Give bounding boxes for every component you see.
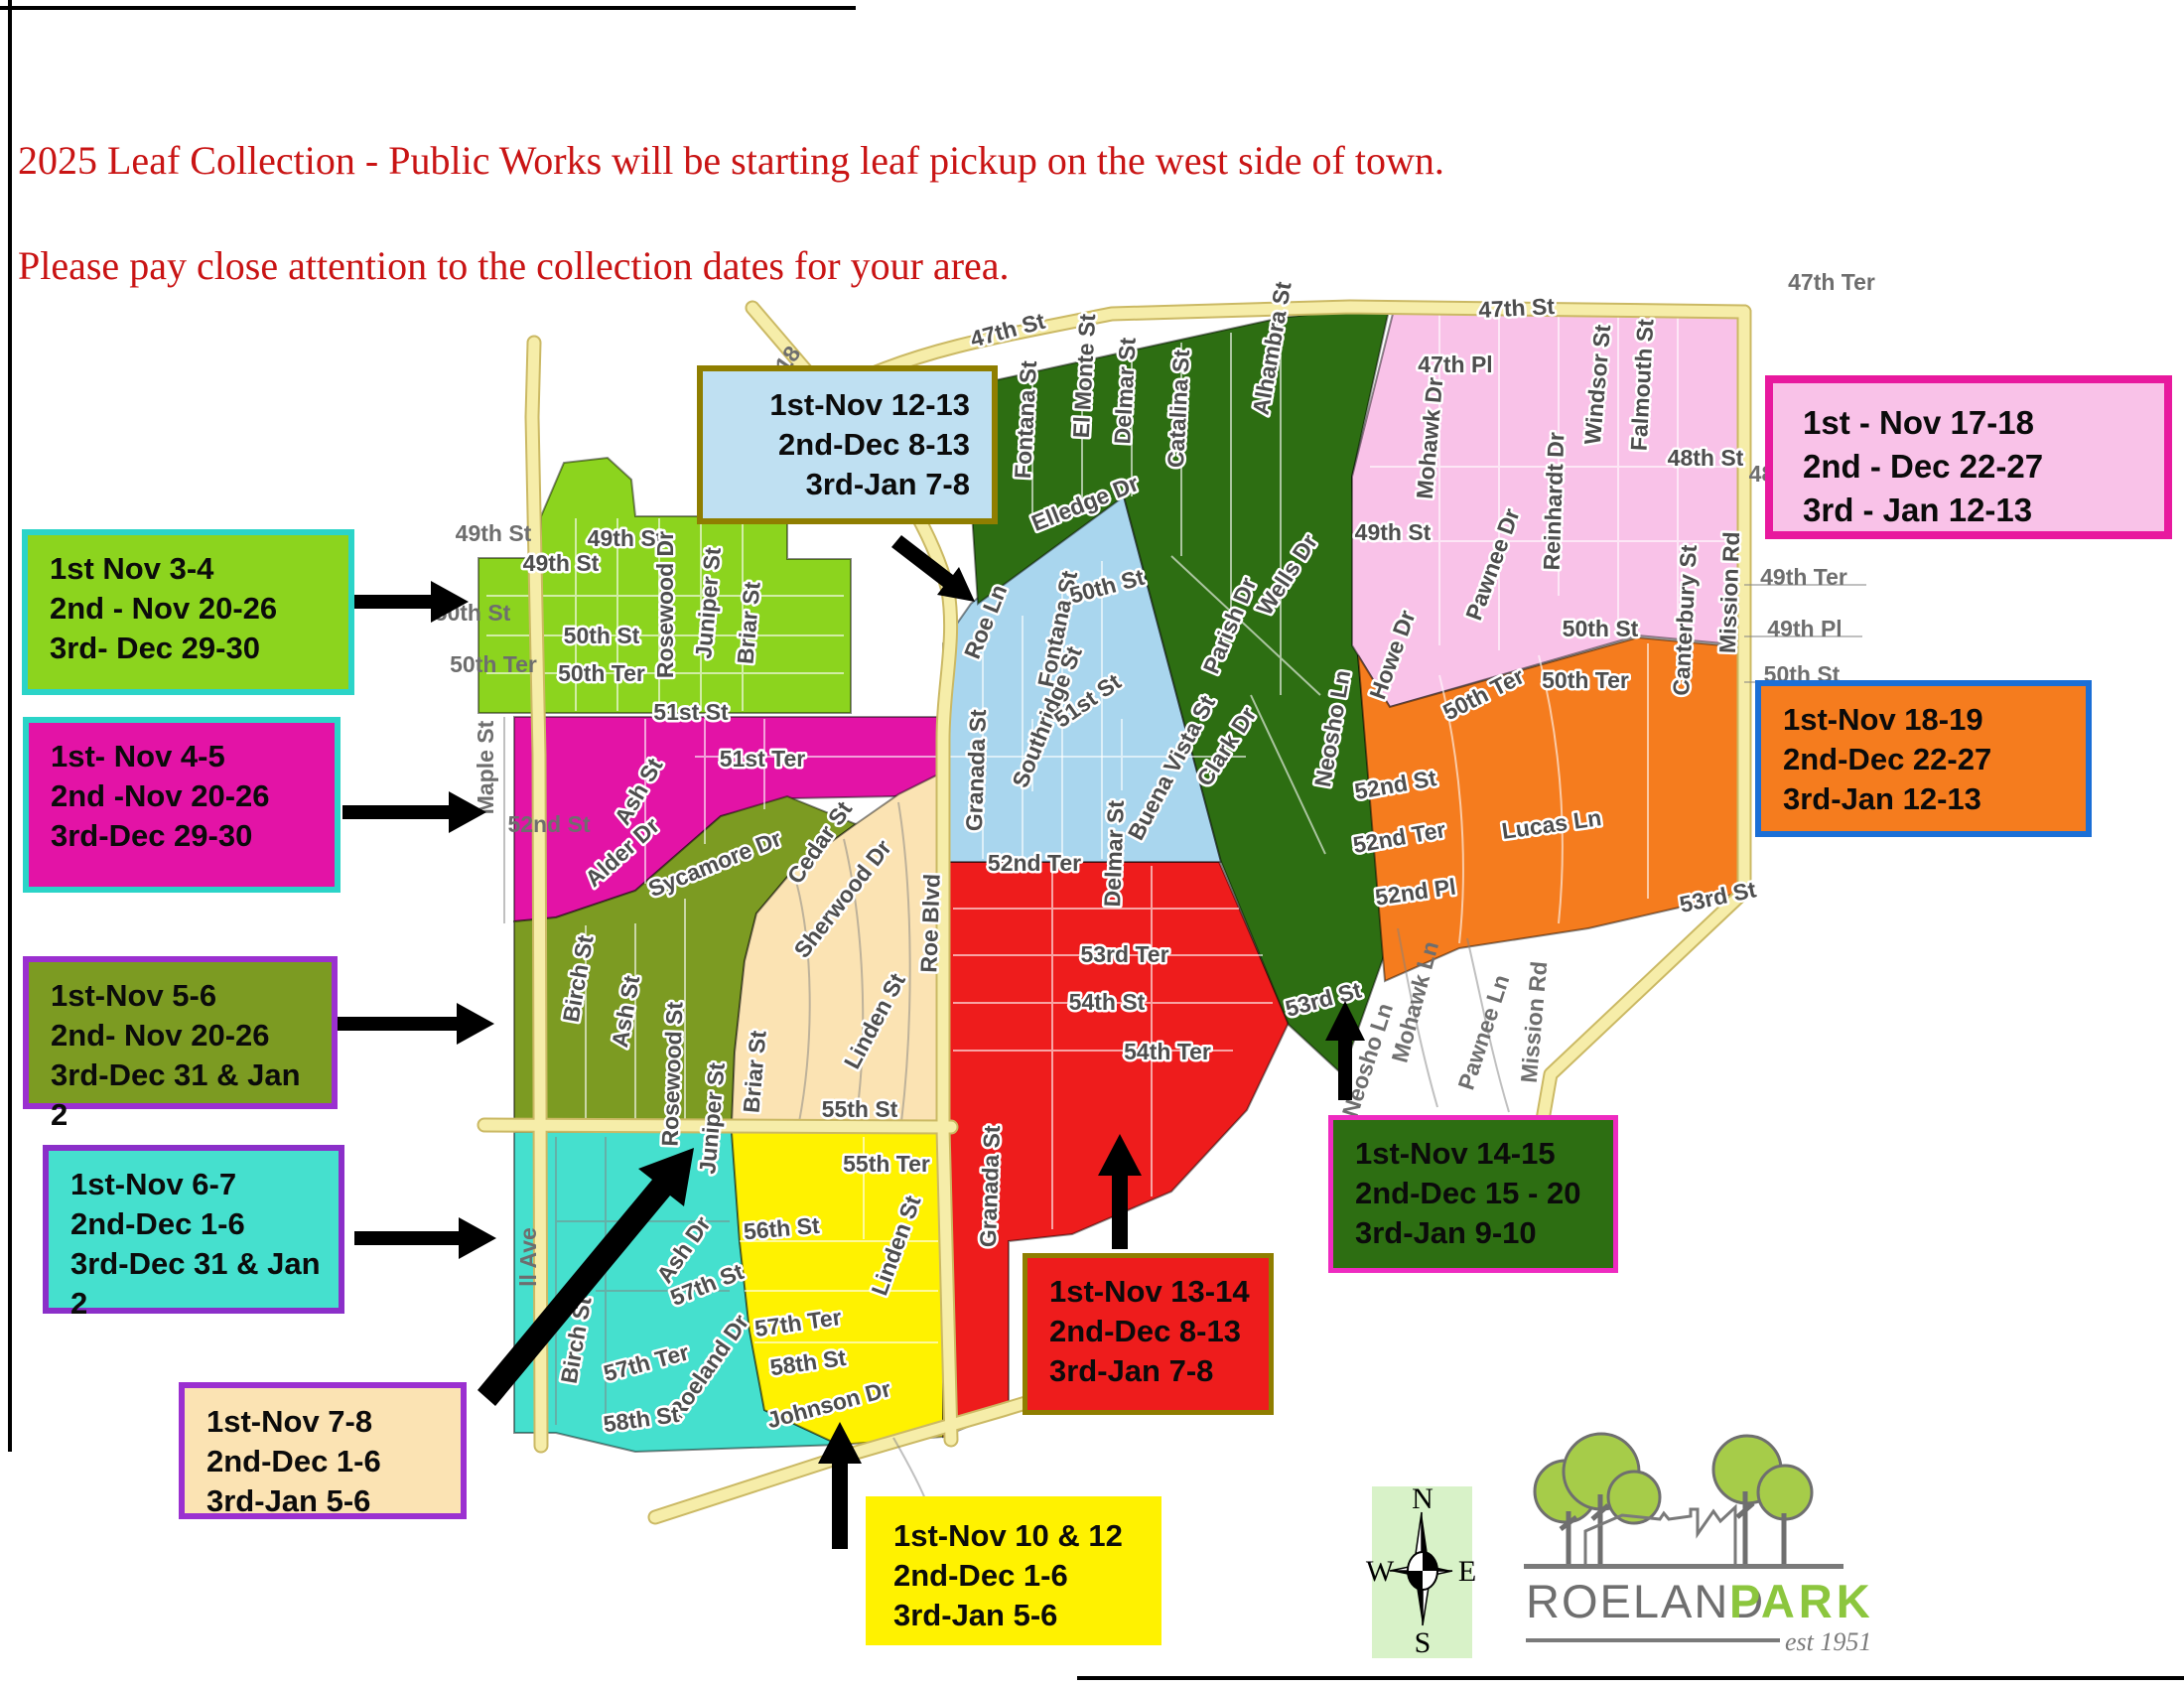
street-label: 52nd Ter bbox=[988, 850, 1081, 876]
schedule-box-orange: 1st-Nov 18-19 2nd-Dec 22-27 3rd-Jan 12-1… bbox=[1755, 680, 2092, 837]
street-label: Pawnee Ln bbox=[1452, 971, 1514, 1092]
schedule-line: 3rd-Dec 31 & Jan 2 bbox=[51, 1055, 324, 1135]
compass-north-label: N bbox=[1412, 1482, 1433, 1515]
street-label: 49th St bbox=[1355, 519, 1432, 545]
schedule-line: 2nd - Dec 22-27 bbox=[1803, 445, 2156, 489]
schedule-line: 2nd -Nov 20-26 bbox=[51, 776, 327, 816]
street-label: 50th St bbox=[1563, 616, 1639, 641]
schedule-line: 3rd-Jan 7-8 bbox=[711, 465, 970, 504]
street-label: 49th St bbox=[456, 520, 532, 546]
logo-trees bbox=[1535, 1434, 1812, 1523]
schedule-line: 1st-Nov 7-8 bbox=[206, 1402, 453, 1442]
street-label: Granada St bbox=[961, 709, 991, 832]
street-label: Mission Rd bbox=[1516, 960, 1553, 1083]
arrow-olive bbox=[336, 1003, 494, 1045]
roeland-park-logo: ROELAND PARK est 1951 bbox=[1524, 1434, 1874, 1656]
street-label: 51st Ter bbox=[720, 746, 806, 772]
street-label: Roe Blvd bbox=[915, 873, 944, 973]
street-label: 55th St bbox=[822, 1096, 898, 1122]
schedule-line: 3rd-Jan 5-6 bbox=[893, 1596, 1148, 1635]
street-label: 49th Pl bbox=[1767, 616, 1842, 641]
schedule-line: 2nd - Nov 20-26 bbox=[50, 589, 341, 629]
schedule-line: 1st-Nov 10 & 12 bbox=[893, 1516, 1148, 1556]
page-border-bottom bbox=[1077, 1676, 2184, 1680]
title-line-1: 2025 Leaf Collection - Public Works will… bbox=[18, 137, 1444, 184]
street-label: Maple St bbox=[473, 720, 498, 814]
logo-ground-line bbox=[1524, 1564, 1843, 1569]
schedule-line: 1st-Nov 14-15 bbox=[1355, 1134, 1605, 1174]
schedule-line: 1st- Nov 4-5 bbox=[51, 737, 327, 776]
schedule-line: 3rd-Dec 31 & Jan 2 bbox=[70, 1244, 331, 1324]
street-label: Mission Rd bbox=[1714, 531, 1744, 654]
schedule-line: 3rd - Jan 12-13 bbox=[1803, 489, 2156, 532]
street-label: 52nd St bbox=[507, 811, 590, 837]
street-label: 47th Pl bbox=[1418, 352, 1492, 377]
schedule-line: 2nd-Dec 15 - 20 bbox=[1355, 1174, 1605, 1213]
schedule-line: 1st-Nov 5-6 bbox=[51, 976, 324, 1016]
schedule-line: 1st - Nov 17-18 bbox=[1803, 401, 2156, 445]
schedule-box-red: 1st-Nov 13-14 2nd-Dec 8-13 3rd-Jan 7-8 bbox=[1023, 1253, 1274, 1415]
schedule-line: 3rd-Jan 5-6 bbox=[206, 1481, 453, 1521]
schedule-line: 3rd-Jan 12-13 bbox=[1783, 779, 2078, 819]
logo-word-park: PARK bbox=[1729, 1575, 1874, 1627]
schedule-box-tan: 1st-Nov 7-8 2nd-Dec 1-6 3rd-Jan 5-6 bbox=[179, 1382, 467, 1519]
schedule-box-darkgreen: 1st-Nov 14-15 2nd-Dec 15 - 20 3rd-Jan 9-… bbox=[1328, 1115, 1618, 1273]
schedule-line: 2nd-Dec 22-27 bbox=[1783, 740, 2078, 779]
street-label: 50th Ter bbox=[1542, 667, 1629, 693]
schedule-box-magenta: 1st- Nov 4-5 2nd -Nov 20-26 3rd-Dec 29-3… bbox=[23, 717, 341, 893]
street-label: ll Ave bbox=[515, 1227, 541, 1287]
street-label: 47th Ter bbox=[1788, 269, 1875, 295]
street-label: Delmar St bbox=[1099, 799, 1129, 908]
compass-east-label: E bbox=[1458, 1555, 1476, 1588]
schedule-line: 2nd-Dec 1-6 bbox=[893, 1556, 1148, 1596]
street-label: 55th Ter bbox=[843, 1151, 930, 1177]
arrow-magenta bbox=[342, 791, 486, 833]
schedule-line: 1st-Nov 6-7 bbox=[70, 1165, 331, 1204]
schedule-line: 2nd- Nov 20-26 bbox=[51, 1016, 324, 1055]
page-border-left bbox=[8, 0, 12, 1452]
street-label: 54th Ter bbox=[1124, 1039, 1211, 1064]
street-label: 50th St bbox=[564, 623, 640, 648]
street-label: 54th St bbox=[1069, 989, 1146, 1015]
schedule-line: 1st-Nov 12-13 bbox=[711, 385, 970, 425]
street-label: Granada St bbox=[975, 1125, 1005, 1248]
street-label: Reinhardt Dr bbox=[1539, 432, 1570, 571]
compass-south-label: S bbox=[1415, 1626, 1432, 1659]
schedule-box-lightblue: 1st-Nov 12-13 2nd-Dec 8-13 3rd-Jan 7-8 bbox=[697, 365, 998, 524]
logo-underline bbox=[1526, 1638, 1780, 1642]
schedule-line: 2nd-Dec 8-13 bbox=[1049, 1312, 1261, 1351]
schedule-line: 1st-Nov 18-19 bbox=[1783, 700, 2078, 740]
street-label: 49th Ter bbox=[1760, 564, 1847, 590]
schedule-line: 1st-Nov 13-14 bbox=[1049, 1272, 1261, 1312]
street-label: 53rd Ter bbox=[1080, 941, 1168, 967]
schedule-box-turquoise: 1st-Nov 6-7 2nd-Dec 1-6 3rd-Dec 31 & Jan… bbox=[43, 1145, 344, 1314]
street-label: 50th Ter bbox=[450, 651, 537, 677]
schedule-box-yellow: 1st-Nov 10 & 12 2nd-Dec 1-6 3rd-Jan 5-6 bbox=[866, 1496, 1161, 1645]
schedule-box-lime: 1st Nov 3-4 2nd - Nov 20-26 3rd- Dec 29-… bbox=[22, 529, 354, 695]
schedule-line: 3rd-Jan 7-8 bbox=[1049, 1351, 1261, 1391]
title-line-2: Please pay close attention to the collec… bbox=[18, 242, 1010, 289]
street-label: 47th St bbox=[968, 308, 1048, 352]
schedule-box-pink: 1st - Nov 17-18 2nd - Dec 22-27 3rd - Ja… bbox=[1765, 375, 2172, 539]
schedule-line: 2nd-Dec 8-13 bbox=[711, 425, 970, 465]
street-label: 47th St bbox=[1478, 293, 1556, 323]
schedule-line: 1st Nov 3-4 bbox=[50, 549, 341, 589]
schedule-line: 2nd-Dec 1-6 bbox=[70, 1204, 331, 1244]
page-border-top bbox=[0, 6, 856, 10]
schedule-line: 3rd- Dec 29-30 bbox=[50, 629, 341, 668]
compass-rose: N S W E bbox=[1366, 1482, 1476, 1659]
compass-west-label: W bbox=[1366, 1555, 1395, 1588]
schedule-box-olive: 1st-Nov 5-6 2nd- Nov 20-26 3rd-Dec 31 & … bbox=[23, 956, 338, 1109]
street-label: 49th St bbox=[523, 550, 600, 576]
street-label: Rosewood St bbox=[656, 1001, 687, 1147]
logo-est-1951: est 1951 bbox=[1785, 1627, 1871, 1656]
schedule-line: 3rd-Jan 9-10 bbox=[1355, 1213, 1605, 1253]
logo-roofline bbox=[1585, 1507, 1735, 1566]
street-label: 51st St bbox=[653, 699, 729, 725]
schedule-line: 2nd-Dec 1-6 bbox=[206, 1442, 453, 1481]
street-label: 48th St bbox=[1668, 445, 1744, 471]
arrow-turquoise bbox=[354, 1217, 496, 1259]
schedule-line: 3rd-Dec 29-30 bbox=[51, 816, 327, 856]
street-label: 50th Ter bbox=[558, 660, 645, 686]
street-label: Rosewood Dr bbox=[652, 531, 678, 678]
